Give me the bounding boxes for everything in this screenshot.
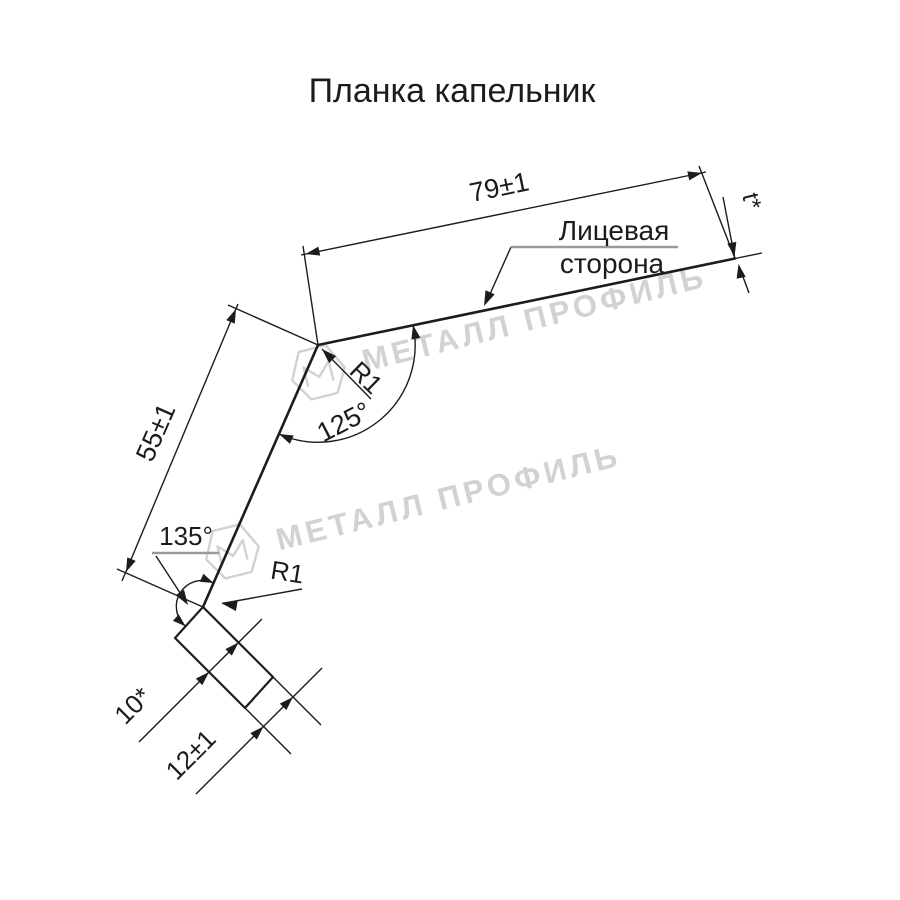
face-side-label-line2: сторона	[560, 248, 665, 279]
r1-bottom-label: R1	[269, 555, 307, 590]
page-title: Планка капельник	[309, 72, 597, 110]
arrow-up-icon	[734, 263, 746, 278]
dim-hem-width: 10*	[108, 619, 262, 742]
dim-hem-length: 12±1	[160, 668, 322, 794]
angle-135-label: 135°	[159, 521, 213, 551]
angle-125-label: 125°	[312, 396, 375, 448]
dim-10-label: 10*	[108, 681, 157, 730]
arrow-left-icon	[305, 247, 321, 259]
dim-12-label: 12±1	[160, 724, 222, 786]
watermark-bottom: МЕТАЛЛ ПРОФИЛЬ	[200, 431, 626, 582]
leader-arrow-icon	[479, 290, 494, 308]
drawing-canvas: МЕТАЛЛ ПРОФИЛЬ МЕТАЛЛ ПРОФИЛЬ Планка кап…	[0, 0, 900, 900]
watermark-text-bottom: МЕТАЛЛ ПРОФИЛЬ	[273, 438, 625, 558]
dim-thickness: t*	[723, 190, 766, 293]
face-side-label-line1: Лицевая	[559, 215, 670, 246]
dim-79-label: 79±1	[467, 166, 532, 208]
thickness-label: t*	[736, 190, 766, 212]
drawing-page: МЕТАЛЛ ПРОФИЛЬ МЕТАЛЛ ПРОФИЛЬ Планка кап…	[0, 0, 900, 900]
radius-bottom-callout: R1	[221, 555, 306, 611]
